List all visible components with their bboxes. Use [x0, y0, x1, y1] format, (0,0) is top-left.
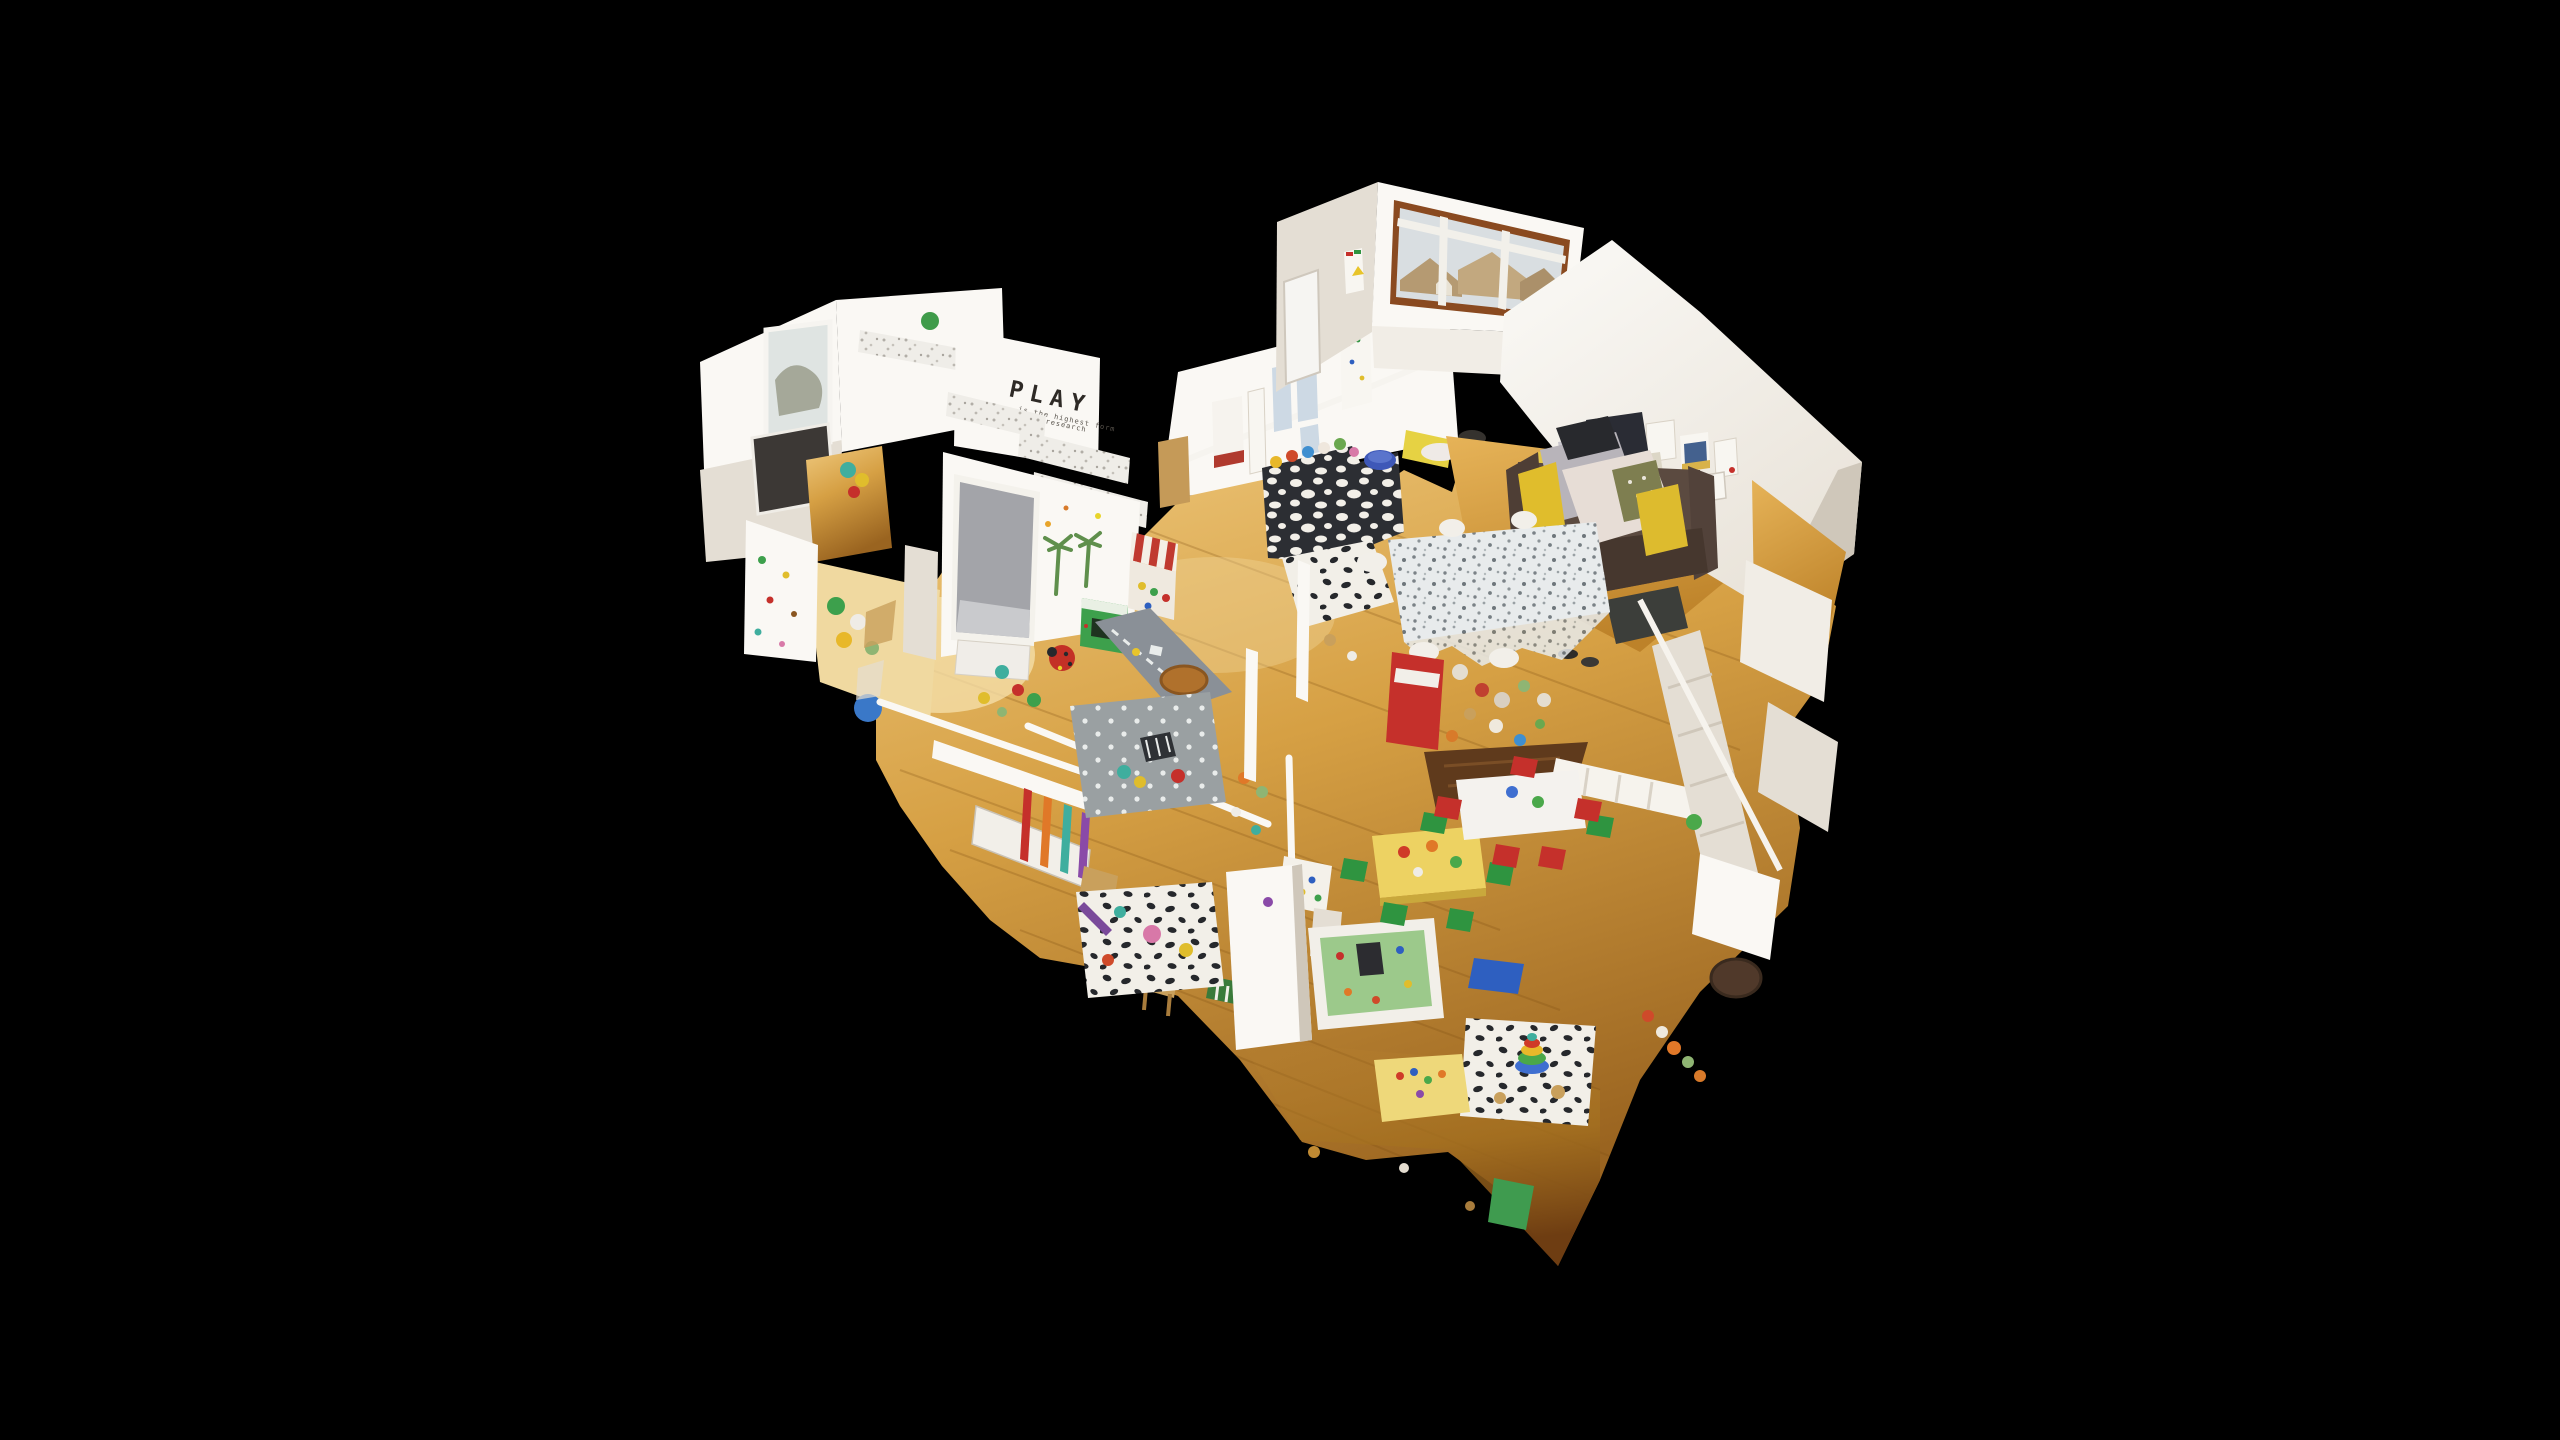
dollhouse-model: PLAY is the highest form of research: [0, 0, 2560, 1440]
viewer-canvas: PLAY is the highest form of research: [0, 0, 2560, 1440]
tall-white-poster: [1248, 388, 1266, 474]
cork-board: [1158, 436, 1190, 508]
red-toy: [1102, 954, 1114, 966]
white-chair-1: [1357, 552, 1387, 572]
white-kids-table: [1456, 770, 1586, 840]
black-toy-castle: [1356, 942, 1384, 976]
door-frame-piece-2: [1296, 560, 1310, 702]
dollhouse-3d-viewport[interactable]: PLAY is the highest form of research: [0, 0, 2560, 1440]
safety-sticker: [1344, 248, 1364, 294]
train-table: [1308, 918, 1444, 1030]
green-chair-bottom: [1488, 1178, 1534, 1230]
gold-toy-2: [1494, 1092, 1506, 1104]
radiator-below-window: [955, 640, 1030, 680]
schedule-chart-poster: [1714, 438, 1738, 478]
blue-spotted-tub: [1364, 450, 1396, 470]
white-chair-4: [1439, 519, 1465, 537]
dark-wicker-basket: [1711, 959, 1761, 997]
photo-poster: [1680, 432, 1710, 472]
white-chair-3: [1489, 648, 1519, 668]
paint-splat-wall: [744, 520, 818, 662]
wicker-basket: [1161, 666, 1207, 694]
side-wall-door: [1284, 270, 1320, 384]
polka-dot-rug: [1070, 692, 1226, 818]
slipper-2: [1581, 657, 1599, 667]
partition-sticker: [1263, 897, 1273, 907]
doorway-frame: [903, 545, 938, 660]
red-highchair: [1386, 652, 1444, 750]
white-chair-5: [1511, 511, 1537, 529]
green-wall-clock: [921, 312, 939, 330]
pink-toy: [1143, 925, 1161, 943]
green-fragment: [1686, 814, 1702, 830]
blue-chair: [1468, 958, 1524, 994]
yellow-toy-table: [1374, 1054, 1470, 1122]
gold-toy-1: [1551, 1085, 1565, 1099]
dalmatian-rug-area: [1076, 882, 1224, 998]
door-frame-piece-1: [1244, 648, 1258, 782]
teal-toy: [1114, 906, 1126, 918]
striped-market-stall: [1128, 532, 1178, 620]
yellow-toy: [1179, 943, 1193, 957]
